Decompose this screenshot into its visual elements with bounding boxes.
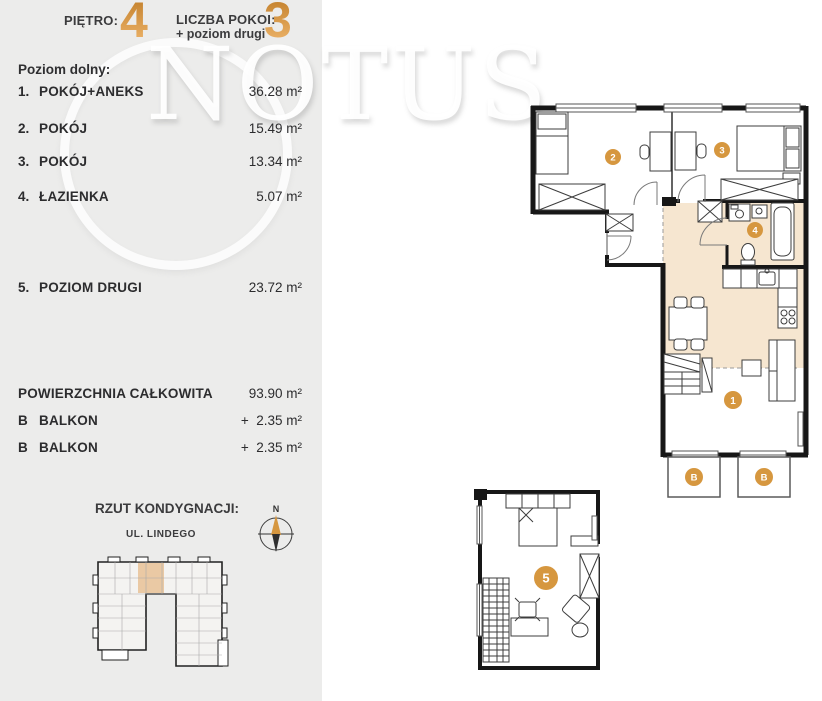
chair <box>640 145 649 159</box>
headboard-shelf <box>506 494 570 508</box>
rooms-count-sublabel: + poziom drugi <box>176 27 265 41</box>
double-bed <box>737 126 801 171</box>
kitchen-floor <box>663 267 806 394</box>
wardrobe <box>580 554 599 598</box>
badge-room5: 5 <box>542 571 549 586</box>
desk <box>511 618 548 636</box>
single-bed <box>536 112 568 174</box>
bathroom-fixtures <box>729 203 794 265</box>
total-area-label: POWIERZCHNIA CAŁKOWITA <box>18 386 213 401</box>
chair <box>674 297 687 308</box>
room-row-1: 1. POKÓJ+ANEKS 36.28 m² <box>18 84 302 99</box>
badge-room2: 2 <box>610 153 615 164</box>
chair <box>519 602 536 617</box>
room3-furniture <box>675 126 801 200</box>
round-table <box>572 623 588 637</box>
floor-number: 4 <box>120 0 148 45</box>
room-area: 15.49 m² <box>249 121 302 136</box>
room-area: 5.07 m² <box>256 189 302 204</box>
badge-room4: 4 <box>752 226 758 237</box>
staircase <box>664 354 700 394</box>
side-table <box>742 360 761 376</box>
desk-left <box>650 132 671 171</box>
balcony-index: B <box>18 440 39 455</box>
windows-top <box>556 104 800 112</box>
badge-room3: 3 <box>719 146 724 157</box>
balcony-row-2: B BALKON + 2.35 m² <box>18 440 302 455</box>
toilet <box>742 244 755 261</box>
chair <box>674 339 687 350</box>
total-area-value: 93.90 m² <box>249 386 302 401</box>
room-name: POKÓJ <box>39 154 87 169</box>
chair <box>691 339 704 350</box>
hall-furniture <box>606 201 722 231</box>
room-index: 5. <box>18 280 39 295</box>
balcony-2 <box>738 457 790 497</box>
washing-machine <box>729 204 750 221</box>
street-label: UL. LINDEGO <box>126 529 196 540</box>
badge-balcony1: B <box>691 473 698 484</box>
room-index: 2. <box>18 121 39 136</box>
radiator <box>592 516 597 540</box>
balcony-name: BALKON <box>39 413 98 428</box>
badge-room1: 1 <box>730 396 736 407</box>
stove-column <box>778 288 797 328</box>
floor-label: PIĘTRO: <box>64 13 118 28</box>
room-number-badges: 1 2 3 4 B B <box>605 142 773 486</box>
total-area-row: POWIERZCHNIA CAŁKOWITA 93.90 m² <box>18 386 302 401</box>
rooms-count-label: LICZBA POKOI: <box>176 12 276 27</box>
nightstand <box>783 173 800 184</box>
storey-plan-title: RZUT KONDYGNACJI: <box>95 501 239 516</box>
double-bed <box>519 508 557 546</box>
room-name: POKÓJ+ANEKS <box>39 84 144 99</box>
room-index: 1. <box>18 84 39 99</box>
room-row-5: 5. POZIOM DRUGI 23.72 m² <box>18 280 302 295</box>
balcony-area: + 2.35 m² <box>241 440 302 455</box>
entry-wardrobe <box>606 214 633 231</box>
room-index: 3. <box>18 154 39 169</box>
second-level-plan: 5 <box>474 489 601 670</box>
room5-furniture <box>483 494 599 662</box>
door-swings <box>607 175 727 260</box>
wardrobe <box>721 179 798 200</box>
badge-balcony2: B <box>761 473 768 484</box>
kitchen-sink <box>759 272 775 285</box>
balcony-1 <box>668 457 720 497</box>
dining-table <box>669 307 707 340</box>
sink-cabinet <box>752 205 767 218</box>
info-panel: PIĘTRO: 4 LICZBA POKOI: + poziom drugi 3… <box>0 0 322 701</box>
chair <box>697 144 706 158</box>
wardrobe <box>539 184 605 210</box>
room-row-2: 2. POKÓJ 15.49 m² <box>18 121 302 136</box>
chair <box>691 297 704 308</box>
balcony-name: BALKON <box>39 440 98 455</box>
balcony-doors <box>672 451 786 459</box>
kitchen-counter <box>723 269 797 288</box>
room-index: 4. <box>18 189 39 204</box>
lower-level-section-label: Poziom dolny: <box>18 62 110 77</box>
hall-bathroom-floor <box>663 203 806 267</box>
wardrobe <box>698 201 722 222</box>
room-name: POKÓJ <box>39 121 87 136</box>
living-furniture <box>664 340 795 401</box>
room-area: 23.72 m² <box>249 280 302 295</box>
room-area: 13.34 m² <box>249 154 302 169</box>
sofa <box>769 340 795 401</box>
radiator <box>798 412 803 446</box>
balcony-area: + 2.35 m² <box>241 413 302 428</box>
main-level-plan: 1 2 3 4 B B <box>531 104 808 497</box>
shelf <box>571 536 598 546</box>
room-area: 36.28 m² <box>249 84 302 99</box>
kitchen-fixtures <box>669 269 797 350</box>
balcony-row-1: B BALKON + 2.35 m² <box>18 413 302 428</box>
room-row-4: 4. ŁAZIENKA 5.07 m² <box>18 189 302 204</box>
balcony-index: B <box>18 413 39 428</box>
room-name: ŁAZIENKA <box>39 189 109 204</box>
armchair <box>561 594 591 624</box>
staircase <box>483 578 509 662</box>
room-row-3: 3. POKÓJ 13.34 m² <box>18 154 302 169</box>
rooms-count-number: 3 <box>264 0 292 45</box>
floorplan-card: NOTUS PIĘTRO: 4 LICZBA POKOI: + poziom d… <box>0 0 822 701</box>
room2-furniture <box>536 112 671 210</box>
balconies <box>668 457 790 497</box>
room-name: POZIOM DRUGI <box>39 280 142 295</box>
desk-right <box>675 132 696 170</box>
bathtub <box>771 203 794 260</box>
